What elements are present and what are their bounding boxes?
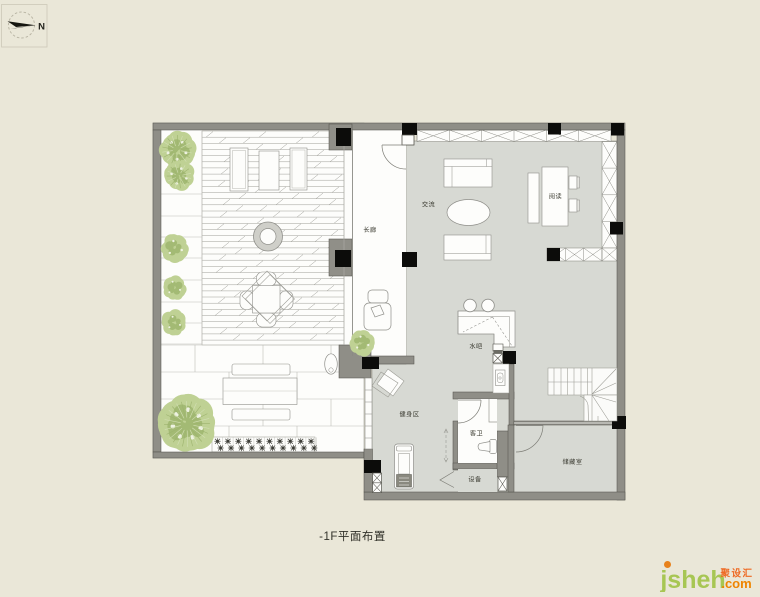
svg-text:健身区: 健身区	[399, 411, 419, 419]
svg-text:阅读: 阅读	[549, 193, 562, 201]
svg-text:长廊: 长廊	[363, 226, 376, 234]
svg-text:储藏室: 储藏室	[562, 458, 582, 466]
svg-text:设备: 设备	[468, 476, 482, 484]
svg-text:交流: 交流	[422, 201, 435, 209]
svg-text:-1F平面布置: -1F平面布置	[319, 530, 386, 543]
svg-text:客卫: 客卫	[470, 430, 483, 438]
svg-text:N: N	[38, 22, 45, 33]
svg-text:聚设汇: 聚设汇	[719, 568, 753, 580]
svg-text:水吧: 水吧	[469, 343, 482, 351]
svg-text:jsheh: jsheh	[659, 566, 725, 592]
